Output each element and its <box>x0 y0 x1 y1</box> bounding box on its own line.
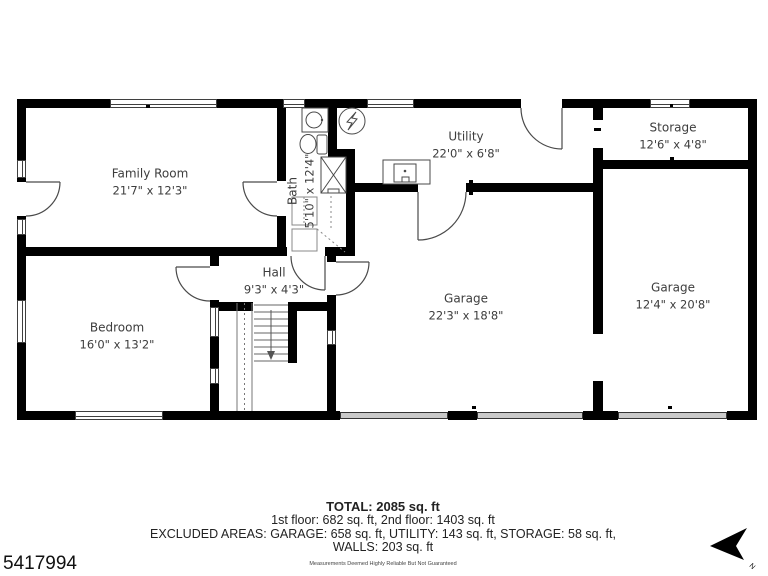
family-room-door <box>243 182 277 216</box>
room-label-bedroom: Bedroom 16'0" x 13'2" <box>80 318 155 353</box>
room-name: Bath <box>283 154 301 229</box>
room-label-bath: Bath 5'10" x 12'4" <box>283 154 318 229</box>
compass: N <box>700 520 768 576</box>
wall-tick-marks <box>146 104 674 409</box>
room-dims: 22'3" x 18'8" <box>429 307 504 324</box>
compass-n-label: N <box>748 562 757 571</box>
entry-door <box>26 182 60 216</box>
summary-excluded: EXCLUDED AREAS: GARAGE: 658 sq. ft, UTIL… <box>0 528 766 542</box>
room-name: Family Room <box>112 164 189 182</box>
summary-floors: 1st floor: 682 sq. ft, 2nd floor: 1403 s… <box>0 514 766 528</box>
water-heater-icon <box>339 108 365 134</box>
room-label-hall: Hall 9'3" x 4'3" <box>244 263 304 298</box>
utility-entry-door <box>521 108 562 149</box>
north-arrow-icon <box>710 528 747 560</box>
area-summary: TOTAL: 2085 sq. ft 1st floor: 682 sq. ft… <box>0 500 766 568</box>
room-label-storage: Storage 12'6" x 4'8" <box>639 118 707 153</box>
laundry-sink-icon <box>383 160 430 184</box>
room-label-family-room: Family Room 21'7" x 12'3" <box>112 164 189 199</box>
room-name: Garage <box>636 278 711 296</box>
summary-total: TOTAL: 2085 sq. ft <box>0 500 766 514</box>
sink-icon <box>302 108 328 132</box>
room-name: Garage <box>429 289 504 307</box>
room-label-garage-right: Garage 12'4" x 20'8" <box>636 278 711 313</box>
staircase <box>237 303 288 411</box>
room-name: Hall <box>244 263 304 281</box>
summary-walls: WALLS: 203 sq. ft <box>0 541 766 555</box>
stairs-down-arrow-icon <box>267 310 275 360</box>
room-dims: 5'10" x 12'4" <box>301 154 318 229</box>
room-dims: 22'0" x 6'8" <box>432 145 500 162</box>
room-name: Bedroom <box>80 318 155 336</box>
floor-plan: Family Room 21'7" x 12'3" Bedroom 16'0" … <box>0 0 768 576</box>
room-name: Utility <box>432 127 500 145</box>
hall-garage-door <box>336 262 369 295</box>
utility-fixtures <box>339 108 430 184</box>
room-name: Storage <box>639 118 707 136</box>
room-label-utility: Utility 22'0" x 6'8" <box>432 127 500 162</box>
listing-number: 5417994 <box>3 553 77 575</box>
room-dims: 21'7" x 12'3" <box>112 182 189 199</box>
room-dims: 9'3" x 4'3" <box>244 281 304 298</box>
shower-icon <box>321 157 346 193</box>
summary-disclaimer: Measurements Deemed Highly Reliable But … <box>0 560 766 568</box>
room-dims: 16'0" x 13'2" <box>80 336 155 353</box>
room-dims: 12'4" x 20'8" <box>636 296 711 313</box>
room-label-garage-left: Garage 22'3" x 18'8" <box>429 289 504 324</box>
bedroom-door <box>176 267 210 301</box>
toilet-icon <box>300 135 327 155</box>
room-dims: 12'6" x 4'8" <box>639 136 707 153</box>
utility-garage-door <box>418 192 466 240</box>
floor-plan-page: Family Room 21'7" x 12'3" Bedroom 16'0" … <box>0 0 768 576</box>
